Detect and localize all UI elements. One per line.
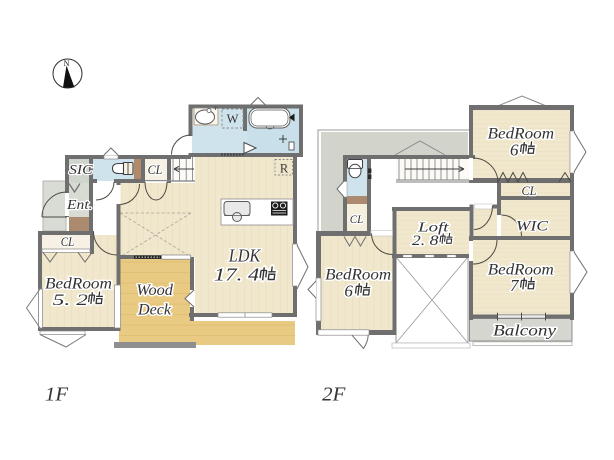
svg-text:CL: CL — [148, 162, 163, 177]
svg-text:2F: 2F — [322, 384, 346, 406]
svg-text:CL: CL — [350, 212, 364, 226]
svg-text:BedRoom: BedRoom — [325, 267, 391, 284]
svg-text:Balcony: Balcony — [493, 323, 556, 340]
svg-text:LDK: LDK — [228, 246, 261, 266]
svg-text:BedRoom: BedRoom — [488, 261, 554, 278]
svg-text:7: 7 — [510, 276, 520, 295]
svg-text:R: R — [280, 162, 289, 176]
svg-text:17. 4: 17. 4 — [214, 265, 260, 285]
svg-text:CL: CL — [61, 234, 75, 249]
svg-text:CL: CL — [522, 184, 537, 198]
svg-text:6: 6 — [344, 282, 353, 301]
svg-text:Deck: Deck — [137, 302, 172, 319]
svg-text:1F: 1F — [45, 384, 69, 406]
svg-text:SIC: SIC — [69, 163, 93, 178]
svg-text:2. 8: 2. 8 — [412, 233, 439, 249]
svg-text:Ent.: Ent. — [66, 198, 93, 213]
svg-text:BedRoom: BedRoom — [45, 276, 112, 293]
svg-text:Wood: Wood — [136, 282, 173, 299]
svg-text:6: 6 — [510, 141, 519, 160]
svg-text:N: N — [64, 59, 70, 68]
svg-text:W: W — [227, 112, 239, 126]
svg-text:BedRoom: BedRoom — [488, 126, 555, 143]
svg-text:5. 2: 5. 2 — [53, 292, 88, 309]
svg-text:WIC: WIC — [516, 219, 548, 235]
